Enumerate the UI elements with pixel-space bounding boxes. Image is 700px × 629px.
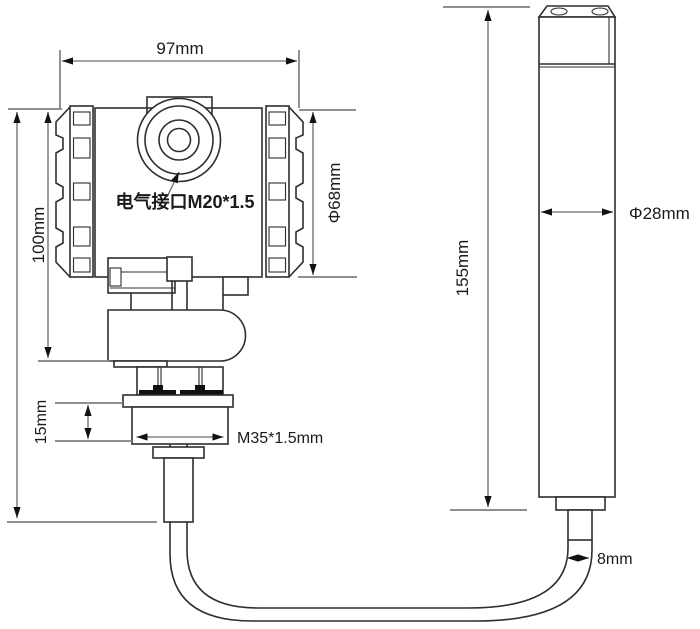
dim-nut-height: 15mm (33, 400, 132, 444)
dim-label-nut-height: 15mm (33, 400, 50, 444)
dim-label-head-diameter: Φ68mm (325, 163, 344, 224)
probe-top-face (539, 6, 615, 17)
hex-nut (132, 407, 228, 444)
down-tube (164, 458, 193, 522)
right-end-cap (266, 106, 303, 277)
dim-label-cable-diameter: 8mm (597, 551, 633, 568)
barrel-lip (114, 361, 167, 367)
connection-barrel (108, 310, 246, 361)
process-connection (108, 310, 246, 522)
cable-inner-edge (187, 522, 568, 608)
dim-label-probe-length: 155mm (453, 240, 472, 297)
dim-label-probe-diameter: Φ28mm (629, 204, 690, 223)
collar (153, 447, 204, 458)
drawing-canvas: 97mm 100mm Φ68mm 电气接口M20*1.5 15mm M35*1.… (0, 0, 700, 629)
dim-label-head-width: 97mm (156, 39, 203, 58)
probe-cable-gland (568, 510, 592, 540)
cable-gland-boss (138, 99, 221, 182)
cable (170, 522, 592, 621)
bolt-head (153, 385, 163, 390)
flange (123, 395, 233, 407)
left-end-cap (56, 106, 93, 277)
bolt-head (195, 385, 205, 390)
dim-head-diameter: Φ68mm (298, 110, 357, 277)
electrical-port-label: 电气接口M20*1.5 (115, 191, 254, 212)
transmitter-assembly (56, 97, 303, 522)
dim-label-thread: M35*1.5mm (237, 430, 323, 447)
probe-end-step (556, 497, 605, 510)
level-probe (539, 6, 615, 540)
dim-probe-length: 155mm (443, 7, 530, 510)
mounting-bracket (108, 257, 248, 310)
dim-label-head-height: 100mm (29, 207, 48, 264)
probe-body (539, 17, 615, 497)
technical-drawing: 97mm 100mm Φ68mm 电气接口M20*1.5 15mm M35*1.… (0, 0, 700, 629)
dim-cable-diameter: 8mm (567, 551, 633, 568)
